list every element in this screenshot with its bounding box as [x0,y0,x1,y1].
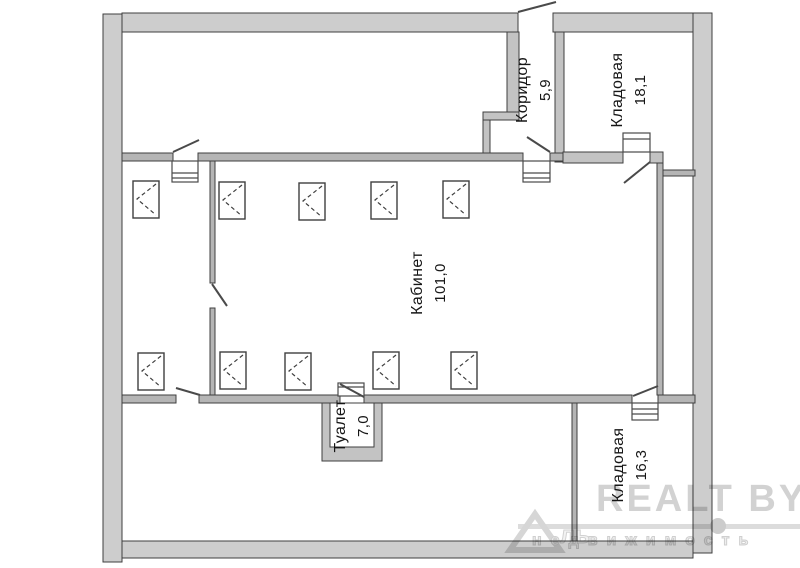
floor-plan-image: Коридор 5,9 Кладовая 18,1 Кабинет 101,0 … [0,0,800,568]
room-label-storage-18: Кладовая 18,1 [606,53,652,128]
window-symbol [133,181,159,218]
wall-left [103,14,122,562]
wall [122,395,176,403]
window-symbol [373,352,399,389]
wall [572,403,577,541]
door-threshold [523,161,550,182]
door-leaf-top-room [173,140,199,152]
door-leaf-entrance [518,2,556,12]
wall [663,170,695,176]
room-label-corridor: Коридор 5,9 [511,57,557,123]
window-symbol [285,353,311,390]
wall [550,153,563,161]
room-area: 18,1 [629,75,652,106]
room-name: Кабинет [406,251,429,315]
room-area: 5,9 [534,79,557,101]
door-leaf-storage-18 [624,162,650,183]
wall [650,152,663,163]
wall [198,153,523,161]
window-symbol [138,353,164,390]
door-steps [632,403,658,420]
door-leaf-bottom-left [176,388,200,395]
window-symbol [443,181,469,218]
wall [210,308,215,395]
room-label-storage-16: Кладовая 16,3 [607,428,653,503]
room-label-office: Кабинет 101,0 [406,251,452,315]
room-name: Кладовая [607,428,630,503]
wall-top-left [122,13,518,32]
window-symbol [220,352,246,389]
wall [210,161,215,283]
wall [122,153,173,161]
wall [199,395,340,403]
door-leaf-storage-16 [633,386,658,396]
window-symbol [451,352,477,389]
wall [658,395,695,403]
door-threshold [623,133,650,152]
room-area: 7,0 [352,415,375,437]
room-name: Коридор [511,57,534,123]
room-name: Кладовая [606,53,629,128]
window-symbol [219,182,245,219]
door-leaf-corridor [527,137,550,152]
window-symbol [299,183,325,220]
room-label-toilet: Туалет 7,0 [329,399,375,452]
wall-bottom [122,541,693,558]
wall-top-right [553,13,712,32]
door-leaves [173,2,658,397]
floor-plan-drawing [0,0,800,568]
door-leaf-partition [212,284,227,306]
wall [364,395,632,403]
wall [657,163,663,395]
room-name: Туалет [329,399,352,452]
room-area: 16,3 [630,450,653,481]
wall [563,152,623,163]
window-symbol [371,182,397,219]
room-area: 101,0 [429,263,452,303]
door-threshold [172,161,198,182]
wall-right [693,13,712,553]
